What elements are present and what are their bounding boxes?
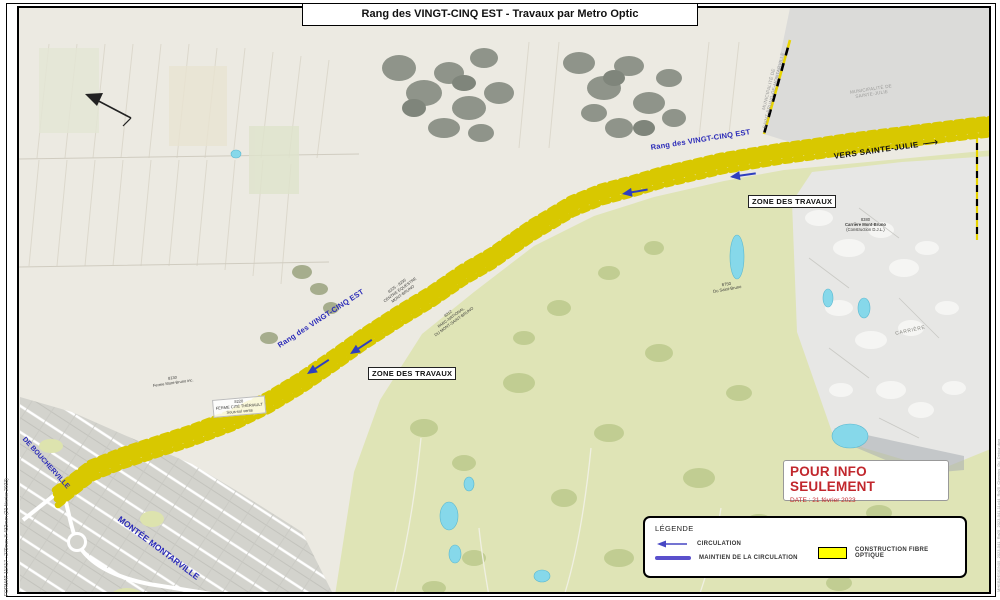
direction-arrow-icon: ⟶	[922, 135, 940, 150]
legend: LÉGENDE CIRCULATION MAINTIEN DE LA CIRCU…	[643, 516, 967, 578]
work-zone-label-east: ZONE DES TRAVAUX	[748, 195, 836, 208]
legend-item-circulation: CIRCULATION	[655, 539, 818, 549]
legend-label: CIRCULATION	[697, 541, 741, 547]
maintien-line-icon	[655, 556, 691, 560]
roundabout	[69, 534, 86, 551]
drawing-title: Rang des VINGT-CINQ EST - Travaux par Me…	[302, 3, 698, 26]
info-box: POUR INFO SEULEMENT DATE : 21 février 20…	[783, 460, 949, 501]
format-note: FORMAT 11X17 : 279mm X 432mm (21 février…	[4, 478, 10, 596]
legend-label: MAINTIEN DE LA CIRCULATION	[699, 555, 798, 561]
info-date-value: 21 février 2023	[812, 497, 855, 504]
poi-carriere-mont-bruno: 8380 Carrière Mont-Bruno (Construction D…	[845, 218, 886, 232]
poi-line: (Construction D.J.L.)	[845, 228, 886, 233]
legend-title: LÉGENDE	[655, 524, 955, 533]
info-title: POUR INFO SEULEMENT	[790, 464, 942, 494]
legend-item-maintien: MAINTIEN DE LA CIRCULATION	[655, 555, 818, 561]
info-date-label: DATE :	[790, 497, 810, 504]
drawing-sheet: Rang des VINGT-CINQ EST - Travaux par Me…	[0, 0, 1000, 600]
construction-swatch-icon	[818, 547, 847, 559]
legend-label: CONSTRUCTION FIBRE OPTIQUE	[855, 547, 955, 559]
info-date: DATE : 21 février 2023	[790, 497, 942, 504]
work-zone-label-west: ZONE DES TRAVAUX	[368, 367, 456, 380]
legend-item-construction: CONSTRUCTION FIBRE OPTIQUE	[818, 545, 955, 561]
circulation-arrow-icon	[655, 539, 689, 549]
file-path-note: MHEBDESIGN05_2023-041_Rg25_2023-041-11x4…	[996, 439, 1000, 592]
